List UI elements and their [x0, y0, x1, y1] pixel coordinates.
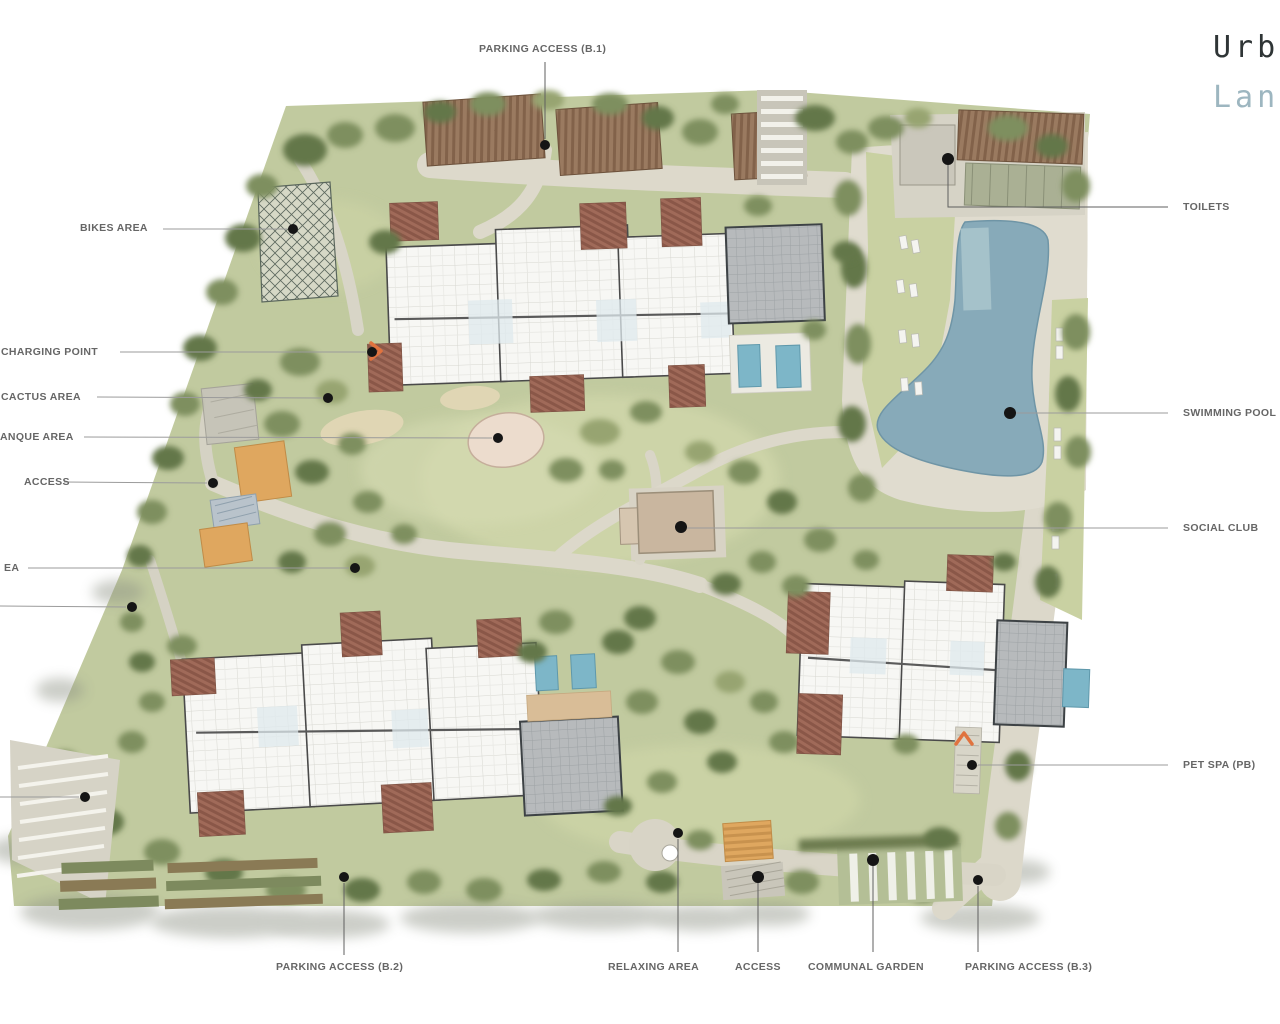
social-club-building	[619, 485, 726, 560]
label-pet-spa: PET SPA (PB)	[1183, 759, 1255, 771]
building-c-roof-block	[994, 620, 1068, 726]
charging-canopy	[234, 441, 291, 503]
label-communal-garden: COMMUNAL GARDEN	[808, 961, 924, 973]
label-cactus-area: CACTUS AREA	[1, 391, 81, 403]
label-petanque-area: ANQUE AREA	[0, 431, 74, 443]
site-plan-illustration	[0, 0, 1280, 1024]
label-social-club: SOCIAL CLUB	[1183, 522, 1258, 534]
building-a-roof-block	[726, 224, 825, 323]
label-area-left: EA	[4, 562, 19, 574]
plan-title-line1: Urb	[1213, 30, 1279, 65]
label-access-left: ACCESS	[24, 476, 70, 488]
label-charging-point: CHARGING POINT	[1, 346, 98, 358]
label-parking-access-b2: PARKING ACCESS (B.2)	[276, 961, 403, 973]
label-bikes-area: BIKES AREA	[80, 222, 148, 234]
label-parking-access-b1: PARKING ACCESS (B.1)	[479, 43, 606, 55]
label-parking-access-b3: PARKING ACCESS (B.3)	[965, 961, 1092, 973]
label-toilets: TOILETS	[1183, 201, 1230, 213]
label-access-bottom: ACCESS	[735, 961, 781, 973]
relaxing-area	[629, 819, 681, 871]
bikes-area	[258, 182, 338, 302]
plan-title-line2: Lan	[1213, 80, 1279, 115]
label-relaxing-area: RELAXING AREA	[608, 961, 699, 973]
label-swimming-pool: SWIMMING POOL	[1183, 407, 1276, 419]
hedge-rows	[57, 854, 323, 913]
